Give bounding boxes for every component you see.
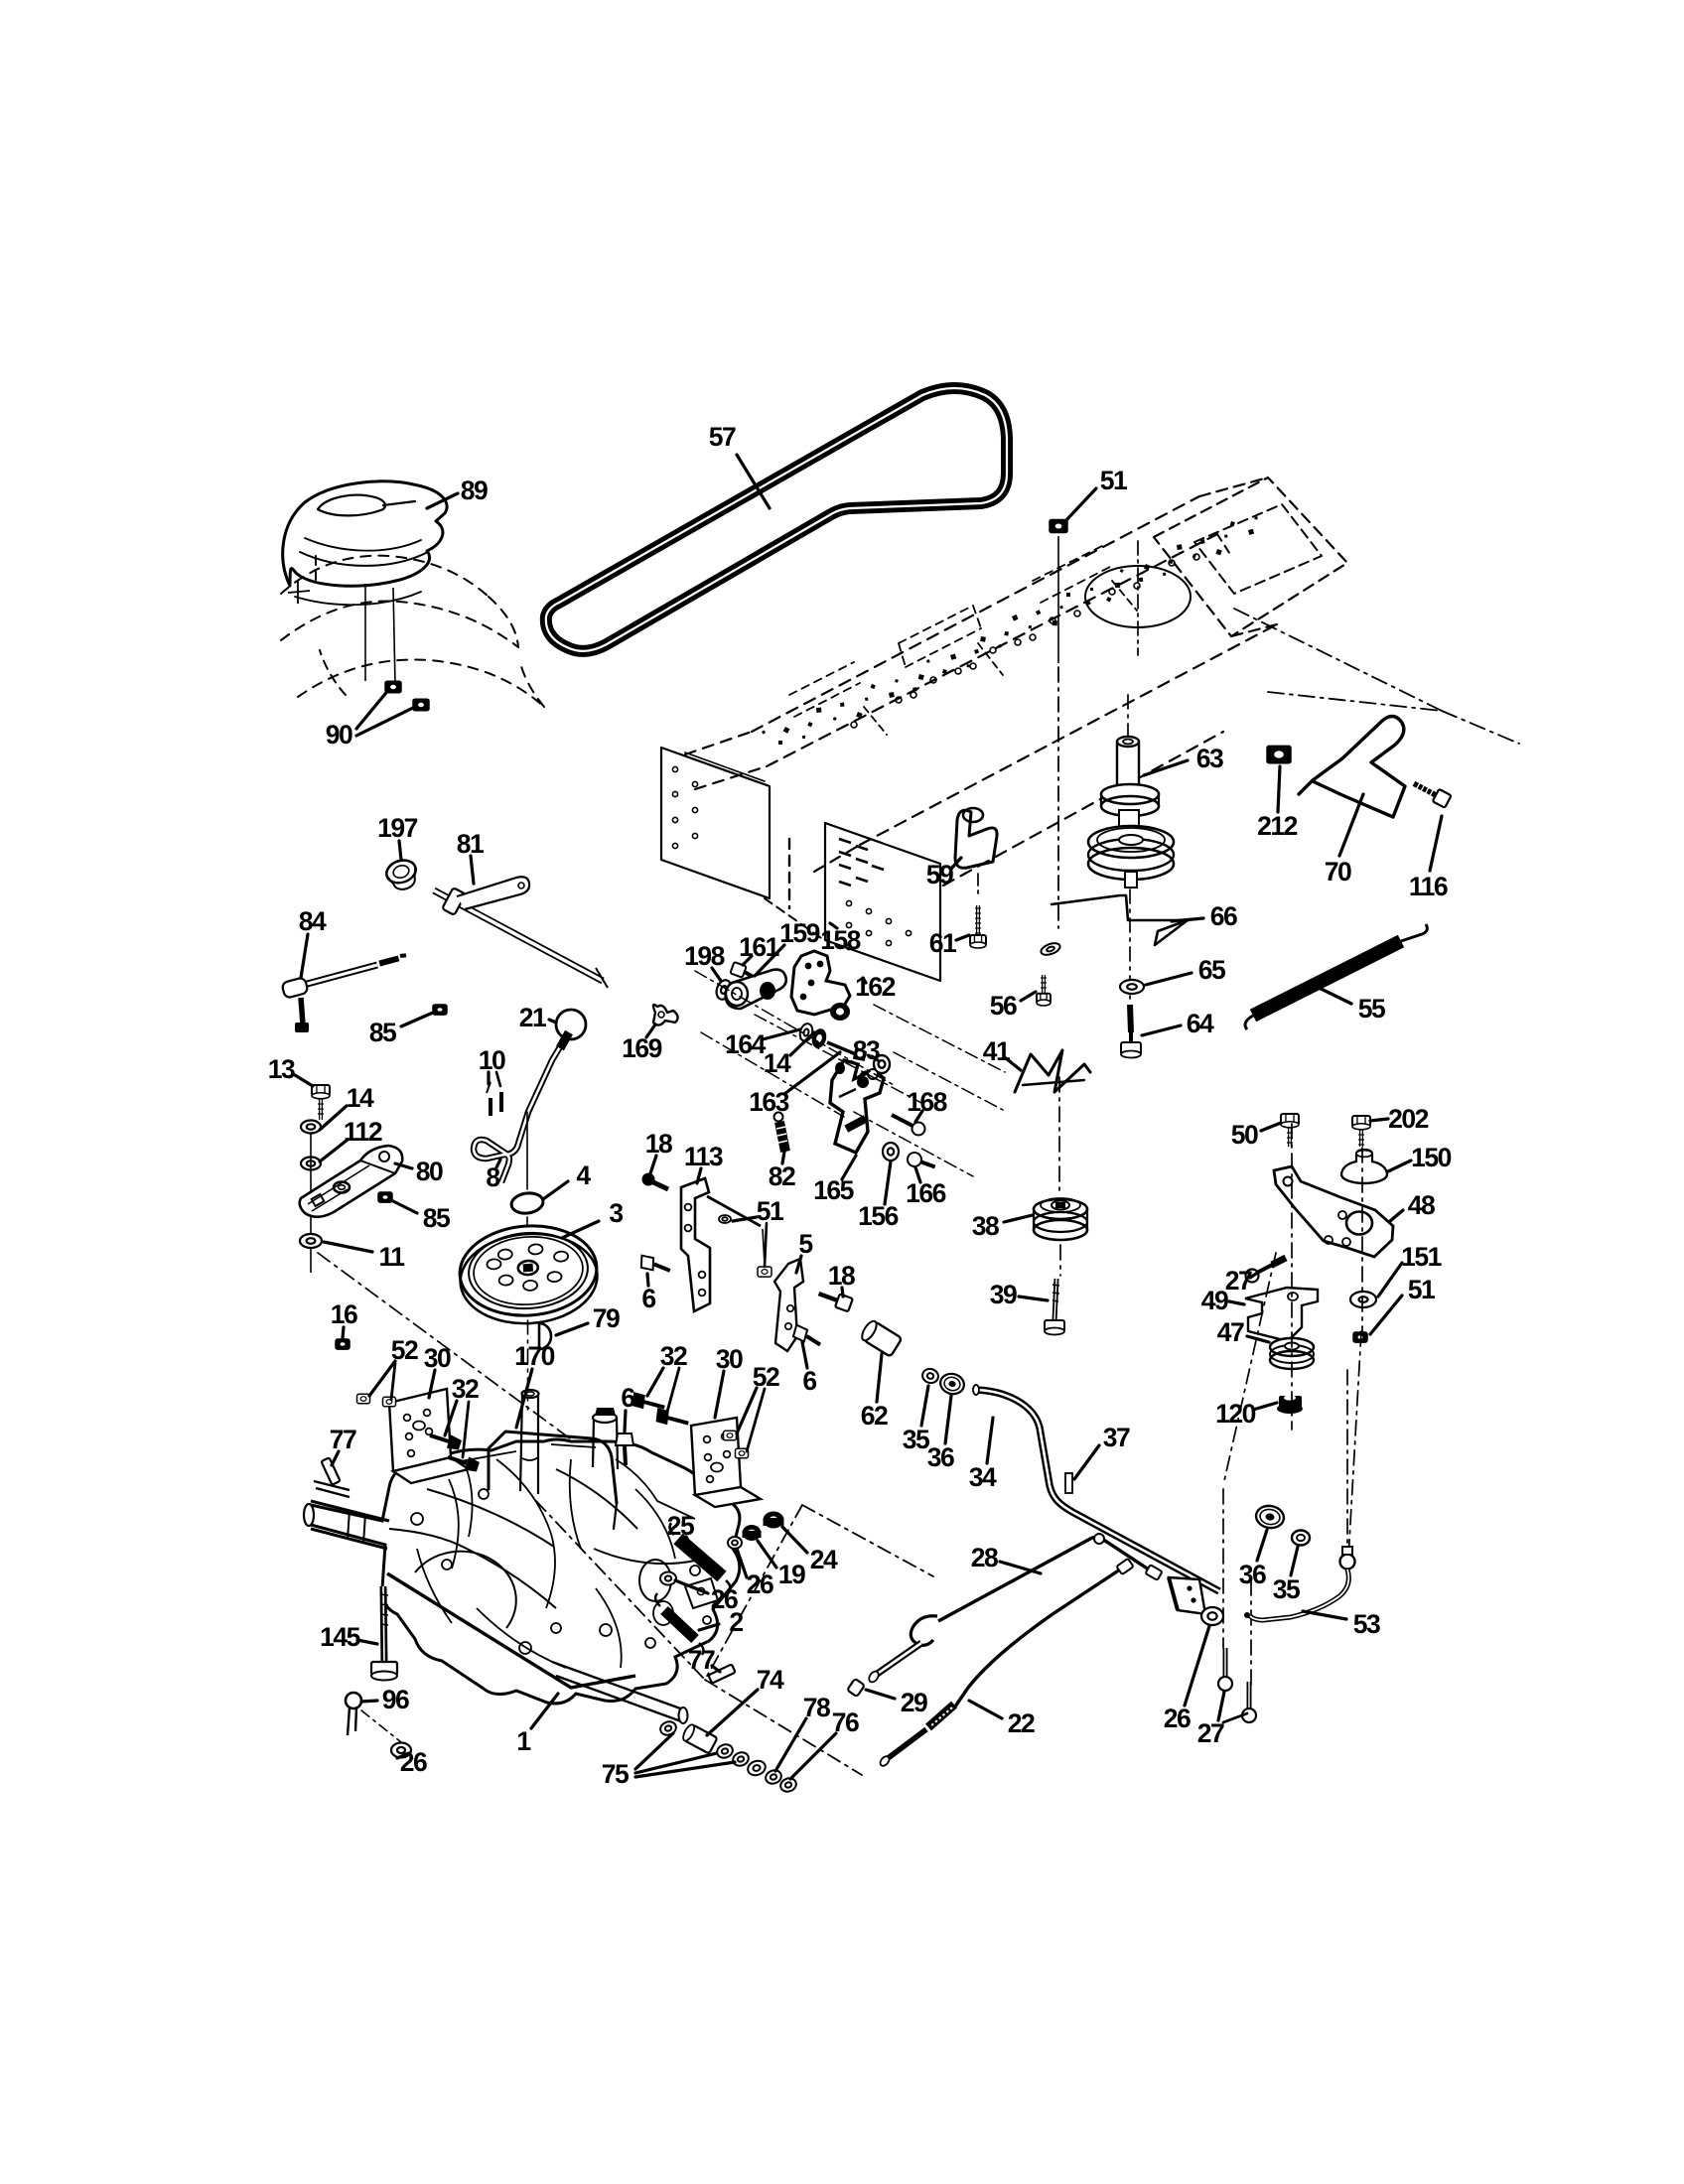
svg-text:3: 3	[609, 1198, 623, 1228]
svg-text:82: 82	[769, 1161, 795, 1191]
svg-text:57: 57	[709, 422, 736, 452]
svg-text:32: 32	[660, 1341, 687, 1371]
svg-text:70: 70	[1325, 857, 1351, 887]
svg-text:21: 21	[519, 1003, 546, 1032]
svg-text:197: 197	[377, 813, 417, 843]
svg-text:168: 168	[907, 1087, 946, 1117]
svg-text:79: 79	[593, 1303, 620, 1333]
svg-text:51: 51	[1100, 466, 1127, 495]
svg-text:164: 164	[725, 1029, 766, 1059]
svg-text:116: 116	[1409, 872, 1448, 901]
svg-text:26: 26	[400, 1747, 427, 1777]
svg-text:158: 158	[820, 925, 860, 955]
svg-text:48: 48	[1408, 1190, 1435, 1220]
svg-text:120: 120	[1215, 1399, 1255, 1429]
svg-text:34: 34	[969, 1462, 997, 1492]
svg-text:74: 74	[757, 1665, 784, 1695]
svg-text:62: 62	[861, 1401, 888, 1431]
svg-text:18: 18	[645, 1129, 672, 1159]
svg-text:166: 166	[906, 1178, 945, 1208]
svg-text:28: 28	[971, 1543, 998, 1572]
svg-text:29: 29	[901, 1688, 927, 1717]
svg-text:22: 22	[1008, 1708, 1035, 1738]
svg-text:36: 36	[927, 1442, 954, 1472]
svg-text:96: 96	[382, 1685, 409, 1714]
svg-text:25: 25	[667, 1511, 694, 1541]
svg-text:162: 162	[855, 972, 895, 1002]
svg-text:51: 51	[1408, 1275, 1435, 1304]
svg-text:38: 38	[972, 1211, 999, 1241]
svg-text:41: 41	[983, 1036, 1010, 1066]
svg-text:24: 24	[810, 1545, 838, 1574]
svg-text:145: 145	[320, 1622, 359, 1652]
svg-text:2: 2	[729, 1607, 743, 1637]
svg-text:36: 36	[1239, 1560, 1266, 1589]
svg-text:75: 75	[602, 1759, 629, 1789]
svg-text:64: 64	[1187, 1009, 1214, 1038]
svg-text:65: 65	[1198, 955, 1225, 985]
svg-text:212: 212	[1257, 811, 1297, 841]
svg-text:1: 1	[516, 1726, 530, 1756]
svg-text:90: 90	[326, 720, 352, 750]
svg-text:112: 112	[344, 1117, 382, 1147]
svg-text:19: 19	[778, 1560, 805, 1589]
svg-text:84: 84	[299, 906, 327, 936]
svg-text:80: 80	[416, 1157, 443, 1186]
svg-text:6: 6	[802, 1366, 816, 1396]
svg-text:30: 30	[716, 1344, 743, 1374]
svg-text:35: 35	[1273, 1574, 1300, 1604]
svg-text:10: 10	[479, 1045, 505, 1075]
svg-text:53: 53	[1353, 1609, 1380, 1639]
svg-text:77: 77	[330, 1425, 356, 1454]
svg-text:27: 27	[1197, 1718, 1224, 1748]
svg-text:35: 35	[903, 1425, 929, 1454]
svg-text:13: 13	[268, 1054, 295, 1084]
svg-text:37: 37	[1103, 1423, 1130, 1452]
svg-text:113: 113	[684, 1142, 723, 1171]
svg-text:16: 16	[331, 1299, 357, 1329]
svg-text:47: 47	[1217, 1317, 1244, 1347]
svg-text:85: 85	[369, 1018, 396, 1047]
svg-text:170: 170	[514, 1341, 554, 1371]
svg-text:6: 6	[621, 1383, 634, 1413]
svg-text:27: 27	[1225, 1266, 1252, 1296]
svg-text:4: 4	[576, 1160, 591, 1190]
svg-text:63: 63	[1196, 744, 1223, 773]
svg-text:81: 81	[457, 829, 484, 859]
svg-text:26: 26	[1164, 1704, 1191, 1733]
svg-text:18: 18	[828, 1261, 855, 1291]
svg-text:61: 61	[929, 928, 956, 958]
svg-text:14: 14	[764, 1048, 791, 1078]
svg-text:159: 159	[779, 918, 819, 948]
svg-text:51: 51	[757, 1196, 783, 1226]
svg-text:77: 77	[688, 1645, 715, 1675]
svg-text:11: 11	[378, 1242, 404, 1272]
svg-text:163: 163	[749, 1087, 788, 1117]
svg-text:150: 150	[1411, 1143, 1451, 1172]
svg-text:30: 30	[424, 1343, 451, 1373]
svg-text:49: 49	[1201, 1286, 1228, 1315]
svg-text:198: 198	[684, 941, 724, 971]
svg-text:50: 50	[1231, 1120, 1258, 1150]
svg-text:39: 39	[990, 1280, 1017, 1309]
svg-text:89: 89	[461, 476, 488, 505]
svg-text:56: 56	[990, 991, 1017, 1021]
svg-text:165: 165	[813, 1175, 853, 1205]
svg-text:156: 156	[858, 1201, 898, 1231]
svg-text:59: 59	[926, 860, 953, 889]
svg-text:32: 32	[452, 1374, 479, 1404]
svg-text:202: 202	[1388, 1104, 1428, 1134]
svg-text:55: 55	[1358, 994, 1385, 1024]
svg-text:26: 26	[747, 1570, 773, 1599]
svg-text:6: 6	[641, 1284, 655, 1313]
svg-text:66: 66	[1210, 901, 1237, 931]
svg-text:169: 169	[622, 1033, 661, 1063]
svg-text:85: 85	[423, 1203, 450, 1233]
svg-text:151: 151	[1401, 1242, 1441, 1272]
svg-text:14: 14	[347, 1083, 374, 1113]
